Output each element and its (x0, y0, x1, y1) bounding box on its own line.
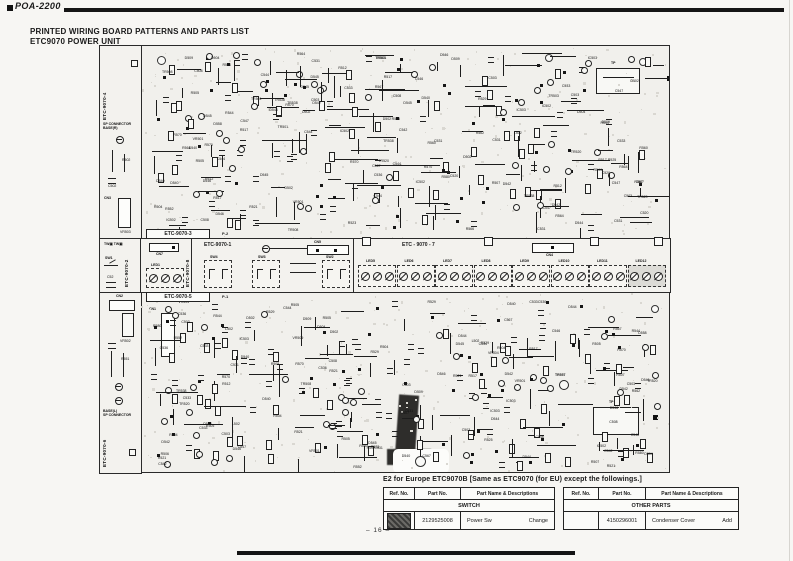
component-label: C531 (405, 409, 413, 413)
pcb-component-icon (294, 83, 297, 86)
led-icon (399, 272, 408, 281)
pcb-component-icon (539, 335, 545, 341)
switch-icon (209, 269, 215, 279)
pcb-component-icon (330, 206, 336, 212)
pcb-component-icon (585, 184, 591, 194)
pcb-component-icon (404, 319, 405, 331)
noise-dot (504, 440, 506, 442)
pcb-component-icon (540, 323, 546, 329)
pcb-component-icon (504, 131, 510, 141)
component-label: R544 (632, 329, 640, 333)
pcb-component-icon (551, 131, 557, 137)
component-label: TR501 (251, 97, 262, 101)
pcb-component-icon (471, 315, 477, 321)
led-icon (149, 274, 158, 283)
noise-dot (240, 373, 242, 375)
component-label: R570 (205, 143, 213, 147)
component-label: C544 (261, 73, 269, 77)
noise-dot (148, 455, 149, 456)
noise-dot (388, 351, 390, 353)
noise-dot (259, 203, 261, 205)
component-label: D502 (285, 186, 293, 190)
component-label: TR503 (375, 56, 386, 60)
pcb-component-icon (543, 125, 569, 126)
connector-cn7 (149, 243, 179, 252)
pcb-component-icon (612, 333, 615, 336)
component-label: R564 (555, 214, 563, 218)
noise-dot (255, 460, 256, 461)
noise-dot (343, 391, 345, 393)
pcb-component-icon (428, 100, 429, 117)
component-label: R551 (121, 357, 129, 361)
pcb-component-icon (328, 179, 341, 180)
pcb-component-icon (621, 458, 624, 461)
pcb-component-icon (334, 76, 335, 98)
pcb-component-icon (459, 166, 460, 177)
noise-dot (144, 362, 146, 364)
sw3-box (252, 260, 280, 288)
pcb-component-icon (151, 374, 157, 380)
pcb-component-icon (266, 381, 272, 387)
pcb-component-icon (580, 305, 583, 308)
pcb-component-icon (479, 106, 480, 118)
noise-dot (474, 116, 476, 118)
noise-dot (510, 135, 511, 136)
noise-dot (411, 118, 412, 119)
pcb-component-icon (460, 197, 463, 200)
pcb-component-icon (346, 344, 347, 355)
pcb-component-icon (327, 345, 328, 356)
noise-dot (181, 194, 183, 196)
pcb-component-icon (535, 151, 538, 154)
pcb-component-icon (155, 348, 156, 366)
component-label: R529 (427, 300, 435, 304)
noise-dot (524, 130, 526, 132)
pcb-component-icon (365, 94, 372, 101)
pcb-component-icon (193, 432, 200, 439)
noise-dot (544, 401, 546, 403)
pcb-component-icon (468, 356, 471, 359)
noise-dot (587, 462, 589, 464)
noise-dot (194, 330, 196, 332)
pcb-component-icon (204, 406, 246, 407)
component-label: D542 (503, 182, 511, 186)
led-icon (361, 272, 370, 281)
noise-dot (349, 123, 350, 124)
pcb-component-icon (292, 139, 293, 152)
pcb-component-icon (479, 379, 485, 389)
pcb-component-icon (475, 164, 505, 165)
noise-dot (447, 325, 449, 327)
component-label: C547 (612, 181, 620, 185)
pcb-component-icon (273, 405, 279, 415)
noise-dot (440, 113, 442, 115)
component-label: C567 (422, 454, 430, 458)
component-label: R506 (161, 452, 169, 456)
component-label: R521 (329, 369, 337, 373)
noise-dot (229, 60, 231, 62)
pcb-component-icon (442, 169, 445, 172)
component-label: C536 (374, 173, 382, 177)
noise-dot (363, 399, 364, 400)
pcb-component-icon (628, 196, 669, 197)
component-label: D502 (302, 110, 310, 114)
pcb-component-icon (456, 220, 459, 223)
pcb-component-icon (327, 400, 333, 410)
noise-dot (277, 457, 278, 458)
noise-dot (399, 405, 401, 407)
noise-dot (468, 308, 469, 309)
noise-dot (361, 417, 362, 418)
pcb-component-icon (173, 409, 174, 426)
noise-dot (608, 95, 610, 97)
component-label: R507 (591, 460, 599, 464)
component-label: C533 (562, 84, 570, 88)
led-group-label: LED10 (559, 259, 570, 263)
noise-dot (385, 227, 387, 229)
noise-dot (335, 311, 337, 313)
model-number: POA-2200 (15, 1, 61, 11)
component-label: D540 (262, 397, 270, 401)
pcb-component-icon (514, 384, 521, 391)
noise-dot (153, 388, 154, 389)
screw-terminal-icon (262, 245, 270, 253)
tab-pad-icon (484, 237, 493, 246)
noise-dot (445, 128, 446, 129)
noise-dot (179, 346, 180, 347)
pcb-component-icon (555, 341, 556, 361)
noise-dot (358, 374, 360, 376)
noise-dot (200, 305, 202, 307)
pcb-component-icon (244, 456, 245, 472)
component-label: R521 (249, 205, 257, 209)
led-group-label: LED8 (482, 259, 491, 263)
pcb-component-icon (436, 332, 443, 339)
col-part-no: Part No. (415, 488, 461, 499)
noise-dot (448, 181, 449, 182)
noise-dot (480, 320, 482, 322)
noise-dot (287, 86, 289, 88)
pcb-component-icon (527, 356, 554, 357)
pcb-component-icon (654, 403, 661, 410)
noise-dot (529, 173, 531, 175)
noise-dot (253, 447, 255, 449)
noise-dot (383, 323, 385, 325)
pad-icon (131, 60, 138, 67)
pcb-component-icon (254, 330, 255, 342)
noise-dot (170, 88, 172, 90)
noise-dot (511, 323, 513, 325)
pcb-component-icon (278, 428, 279, 440)
component-label: C567 (504, 318, 512, 322)
noise-dot (589, 114, 591, 116)
pcb-component-icon (205, 62, 211, 72)
noise-dot (586, 176, 588, 178)
title-line-1: PRINTED WIRING BOARD PATTERNS AND PARTS … (30, 27, 249, 37)
pcb-component-icon (534, 128, 540, 138)
tp-label: TP (611, 61, 615, 65)
section-label: ETC - 9070 - 7 (402, 242, 435, 248)
component-label: VR502 (120, 339, 131, 343)
led-group-box (397, 265, 435, 287)
led-group: LED11 (589, 259, 626, 289)
noise-dot (464, 395, 466, 397)
noise-dot (440, 360, 442, 362)
pcb-component-icon (482, 76, 488, 86)
pcb-component-icon (253, 176, 259, 182)
noise-dot (209, 134, 211, 136)
pcb-component-icon (522, 53, 562, 54)
noise-dot (415, 222, 417, 224)
component-label: VR503 (120, 230, 131, 234)
pcb-component-icon (211, 459, 218, 466)
pcb-component-icon (216, 130, 223, 137)
noise-dot (476, 51, 477, 52)
pcb-component-icon (240, 140, 246, 146)
europe-parts-table-switch: Ref. No. Part No. Part Name & Descriptio… (383, 487, 555, 530)
component-label: D545 (203, 114, 211, 118)
led1-label: LED1 (151, 263, 160, 267)
noise-dot (396, 371, 398, 373)
pcb-component-icon (216, 82, 231, 83)
noise-dot (482, 298, 484, 300)
noise-dot (644, 322, 646, 324)
led-icon (654, 272, 663, 281)
noise-dot (552, 153, 553, 154)
component-label: IC502 (340, 129, 349, 133)
noise-dot (643, 395, 645, 397)
component-label: C546 (415, 77, 423, 81)
noise-dot (624, 224, 625, 225)
component-label: IC502 (166, 218, 175, 222)
led-icon (553, 272, 562, 281)
pcb-component-icon (541, 404, 547, 414)
noise-dot (537, 364, 539, 366)
noise-dot (493, 125, 495, 127)
pcb-component-icon (172, 380, 178, 386)
component-label: C544 (374, 194, 382, 198)
noise-dot (481, 413, 482, 414)
noise-dot (343, 224, 345, 226)
pcb-component-icon (339, 342, 340, 354)
pcb-component-icon (329, 152, 335, 162)
pcb-component-icon (363, 170, 364, 184)
pcb-component-icon (642, 344, 649, 351)
pcb-component-icon (598, 150, 613, 151)
noise-dot (398, 309, 400, 311)
pcb-component-icon (540, 189, 562, 190)
noise-dot (281, 173, 283, 175)
pcb-component-icon (172, 394, 178, 404)
pcb-component-icon (251, 103, 258, 110)
tp-label: TP (609, 400, 613, 404)
component-label: D504 (211, 56, 219, 60)
component-label: C533 (200, 344, 208, 348)
section-label: ETC-9070-2 (124, 247, 129, 287)
noise-dot (522, 303, 524, 305)
pcb-component-icon (628, 156, 629, 170)
noise-dot (237, 70, 239, 72)
sw4-box (204, 260, 232, 288)
pcb-component-icon (429, 186, 430, 207)
noise-dot (496, 308, 498, 310)
pcb-component-icon (433, 190, 439, 200)
component-label: C542 (604, 449, 612, 453)
component-label: C536 (178, 312, 186, 316)
noise-dot (463, 165, 465, 167)
component-label: D504 (644, 452, 652, 456)
noise-dot (155, 76, 157, 78)
section-label: ETC-9070-8 (185, 245, 190, 287)
component-label: C533 (617, 139, 625, 143)
noise-dot (481, 161, 483, 163)
component-label: TR520 (179, 402, 190, 406)
noise-dot (514, 53, 516, 55)
pcb-component-icon (512, 162, 519, 169)
pcb-component-icon (581, 214, 602, 215)
sw1-label: SW1 (105, 256, 113, 260)
pcb-component-icon (628, 56, 635, 63)
component-label: IC503 (490, 409, 499, 413)
europe-variation-heading: E2 for Europe ETC9070B [Same as ETC9070 … (383, 476, 642, 483)
part-name-cell: Power Sw Change (461, 512, 554, 529)
component-label: VR501 (293, 200, 304, 204)
noise-dot (386, 134, 387, 135)
component-label: R517 (529, 347, 537, 351)
component-label: D544 (491, 417, 499, 421)
col-part-name: Part Name & Descriptions (646, 488, 738, 499)
component-label: C503 (571, 93, 579, 97)
part-note: Add (722, 518, 732, 524)
capacitor-icon (108, 343, 116, 349)
component-label: C544 (283, 306, 291, 310)
noise-dot (238, 94, 240, 96)
pcb-component-icon (420, 116, 426, 122)
sp-connector-l-label: BASE(L) SP CONNECTOR (103, 409, 131, 417)
pcb-component-icon (585, 60, 592, 67)
pcb-component-icon (519, 149, 525, 159)
noise-dot (339, 378, 341, 380)
noise-dot (331, 68, 332, 69)
pcb-component-icon (234, 60, 240, 66)
pcb-component-icon (273, 352, 279, 362)
noise-dot (309, 387, 311, 389)
pcb-component-icon (498, 380, 505, 387)
noise-dot (179, 181, 181, 183)
noise-dot (183, 434, 184, 435)
noise-dot (437, 401, 439, 403)
pcb-component-icon (434, 101, 440, 111)
component-label: R560 (639, 146, 647, 150)
pcb-component-icon (547, 385, 554, 392)
pcb-component-icon (523, 427, 563, 428)
led-group: LED8 (474, 259, 511, 289)
noise-dot (627, 135, 629, 137)
pcb-component-icon (188, 119, 194, 129)
pcb-component-icon (443, 84, 446, 87)
noise-dot (631, 293, 633, 295)
component-label: R502 (122, 158, 130, 162)
noise-dot (145, 132, 147, 134)
pcb-component-icon (623, 367, 634, 368)
component-label: R521 (294, 430, 302, 434)
component-label: TR508 (288, 228, 299, 232)
pcb-component-icon (605, 330, 608, 333)
component-label: C530 (538, 300, 546, 304)
pcb-component-icon (357, 185, 401, 186)
pcb-component-icon (499, 462, 505, 468)
noise-dot (545, 212, 547, 214)
pcb-component-icon (433, 452, 439, 462)
noise-dot (528, 158, 530, 160)
noise-dot (410, 430, 412, 432)
component-label: C546 (631, 433, 639, 437)
noise-dot (313, 456, 314, 457)
pcb-component-icon (505, 65, 542, 66)
pcb-component-icon (358, 388, 365, 395)
noise-dot (522, 175, 524, 177)
component-label: R544 (225, 111, 233, 115)
pcb-component-icon (211, 210, 230, 211)
noise-dot (283, 143, 284, 144)
component-label: C508 (393, 94, 401, 98)
noise-dot (344, 416, 346, 418)
noise-dot (333, 352, 334, 353)
pcb-component-icon (366, 56, 372, 62)
component-label: R505 (271, 362, 279, 366)
pattern-label-etc9070-5: ETC-9070-5 (146, 292, 210, 302)
pcb-component-icon (400, 208, 401, 229)
noise-dot (497, 58, 499, 60)
component-label: D546 (440, 53, 448, 57)
component-label: C503 (624, 194, 632, 198)
noise-dot (406, 402, 408, 404)
led-icon (616, 272, 625, 281)
pcb-component-icon (558, 404, 593, 405)
noise-dot (311, 300, 313, 302)
led-icon (515, 272, 524, 281)
pcb-component-icon (323, 331, 326, 334)
pcb-component-icon (352, 107, 358, 117)
component-label: R567 (613, 327, 621, 331)
switch-icon (270, 269, 276, 279)
pcb-component-icon (210, 89, 213, 92)
noise-dot (289, 94, 290, 95)
pcb-component-icon (625, 412, 641, 413)
noise-dot (665, 64, 667, 66)
section-etc9070-6: CN2 VR502 R551 BASE(L) SP CONNECTOR ETC-… (99, 290, 142, 474)
noise-dot (480, 448, 482, 450)
component-label: D540 (402, 454, 410, 458)
component-label: R507 (616, 373, 624, 377)
component-label: C531 (374, 446, 382, 450)
noise-dot (665, 468, 666, 469)
noise-dot (631, 201, 632, 202)
pcb-component-icon (491, 357, 497, 367)
component-label: R580 (635, 451, 643, 455)
ref-no-cell (564, 512, 599, 529)
noise-dot (429, 331, 430, 332)
component-label: TR520 (637, 195, 648, 199)
pcb-component-icon (588, 378, 594, 384)
noise-dot (583, 82, 585, 84)
pcb-component-icon (563, 71, 566, 74)
noise-dot (221, 55, 223, 57)
pcb-component-icon (159, 186, 189, 187)
component-label: D540 (156, 179, 164, 183)
noise-dot (346, 317, 348, 319)
component-label: C531 (537, 227, 545, 231)
